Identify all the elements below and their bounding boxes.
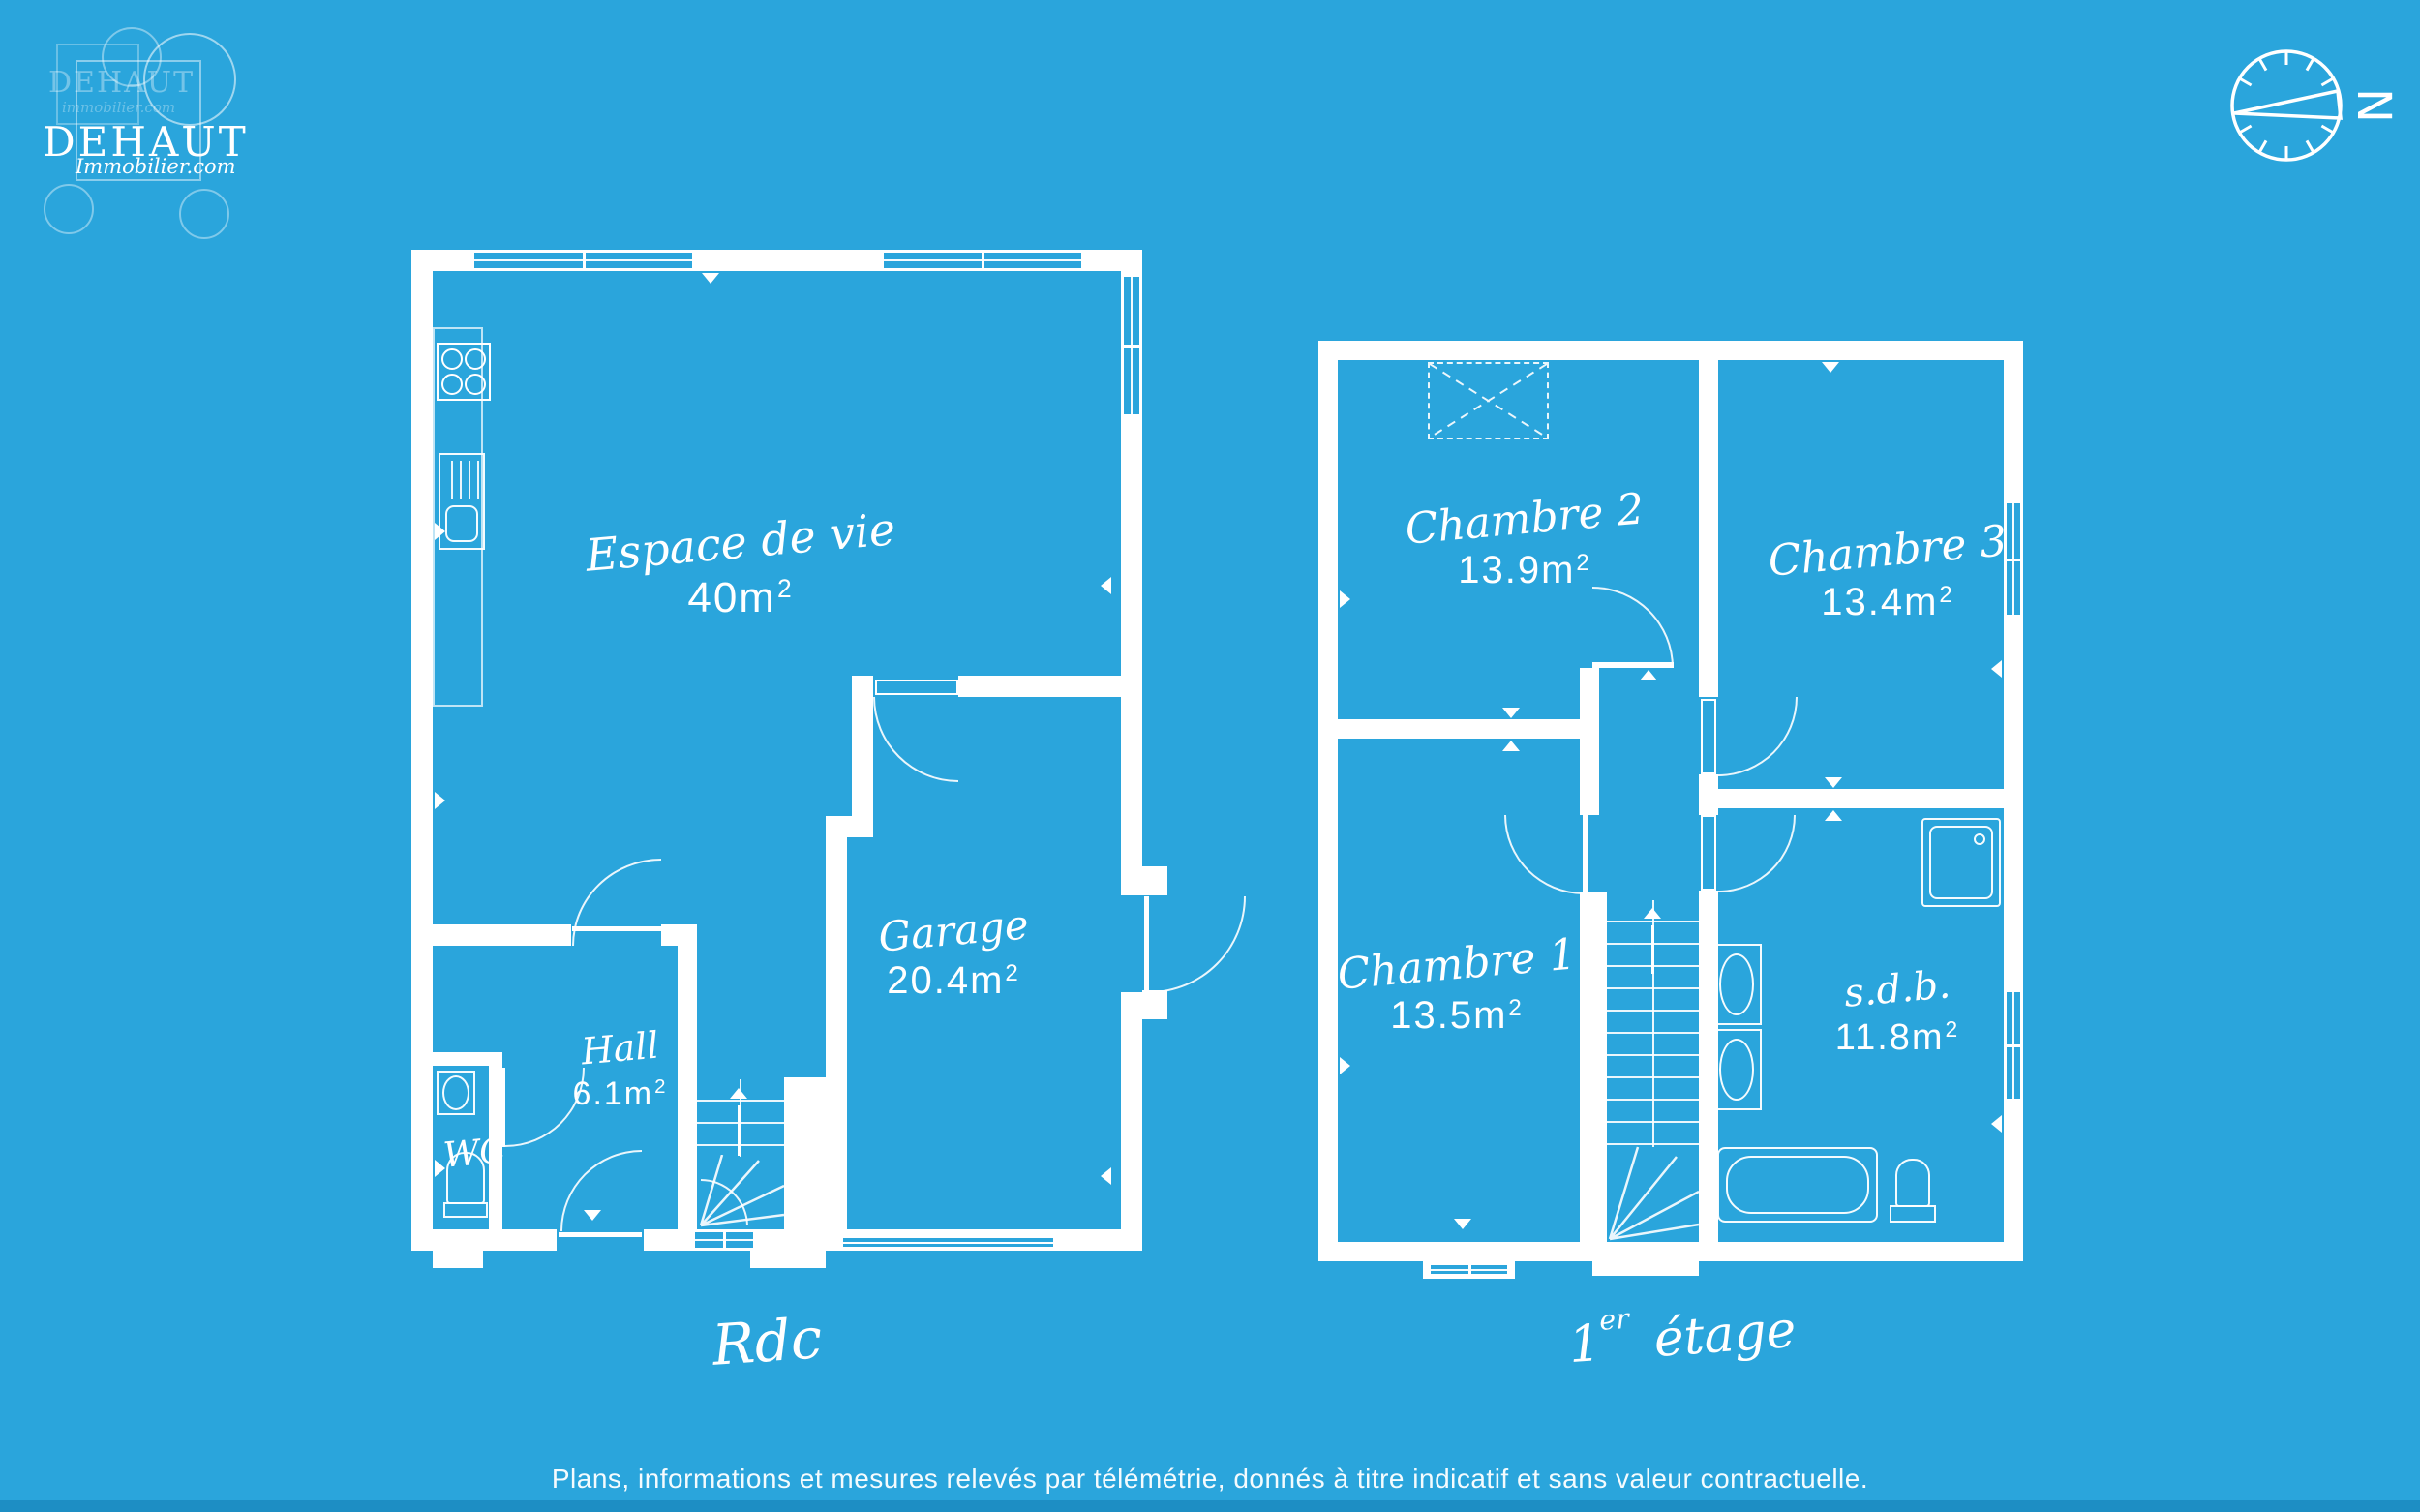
wall xyxy=(1699,360,1718,668)
wall-marker xyxy=(435,523,445,540)
floor-label-etage: 1er étage xyxy=(1555,1300,1810,1376)
wall-marker xyxy=(1454,1219,1471,1229)
wall xyxy=(1142,866,1167,895)
wall-marker xyxy=(1640,670,1657,680)
wall xyxy=(433,1052,502,1066)
room-label-sdb: s.d.b. 11.8m2 xyxy=(1791,968,2004,1058)
washbasin-icon xyxy=(1711,944,1762,1025)
logo-subtext-faint: immobilier.com xyxy=(62,99,175,116)
door-leaf xyxy=(875,680,958,695)
door-arc xyxy=(1592,587,1674,668)
logo-circle-bottom-left xyxy=(44,184,94,234)
washbasin-bowl xyxy=(442,1075,469,1110)
wall xyxy=(1318,341,1338,1261)
wall-marker xyxy=(1825,810,1842,821)
wall xyxy=(852,676,873,837)
room-label-hall: Hall 6.1m2 xyxy=(530,1028,710,1112)
logo-circle-bottom-right xyxy=(179,189,229,239)
wall-marker xyxy=(1340,590,1350,608)
stairs-winder-icon xyxy=(697,1155,784,1229)
wall xyxy=(1318,341,2023,360)
wall-marker xyxy=(1101,577,1111,594)
washbasin-bowl xyxy=(1719,953,1754,1015)
stove-icon xyxy=(437,343,491,401)
compass-north-label: N xyxy=(2346,88,2401,123)
window xyxy=(1431,1263,1507,1276)
toilet-icon xyxy=(1895,1159,1930,1207)
garage-gate xyxy=(832,1236,1063,1249)
washbasin-bowl xyxy=(1719,1039,1754,1101)
garage-gate-cap xyxy=(1053,1238,1062,1247)
velux-skylight xyxy=(1428,362,1549,439)
door-leaf xyxy=(1701,699,1716,774)
door-arc xyxy=(572,859,661,946)
window xyxy=(2004,992,2023,1099)
stairs-arrow xyxy=(738,1105,741,1156)
door-arc xyxy=(1504,815,1584,894)
wall xyxy=(784,1077,826,1229)
wall xyxy=(661,924,697,946)
stairs-arrow-head xyxy=(1644,908,1661,919)
room-label-chambre-2: Chambre 2 13.9m2 xyxy=(1384,496,1665,592)
compass-ring xyxy=(2232,51,2341,160)
room-label-chambre-3: Chambre 3 13.4m2 xyxy=(1742,528,2033,624)
wall xyxy=(411,250,433,1251)
door-leaf xyxy=(572,926,661,931)
wall xyxy=(1338,719,1580,739)
porch xyxy=(750,1251,826,1268)
door-leaf xyxy=(1701,815,1716,891)
wall xyxy=(1142,990,1167,1019)
window xyxy=(1121,277,1142,414)
sink-icon xyxy=(439,453,485,550)
room-label-garage: Garage 20.4m2 xyxy=(828,908,1079,1003)
dehaut-logo: DEHAUT immobilier.com DEHAUT Immobilier.… xyxy=(29,10,281,252)
wall xyxy=(1318,1242,2023,1261)
wall-marker xyxy=(702,273,719,284)
wall-marker xyxy=(435,792,445,809)
door-arc xyxy=(560,1150,642,1231)
room-label-espace-de-vie: Espace de vie 40m2 xyxy=(571,518,910,621)
wall xyxy=(1580,668,1599,815)
door-arc xyxy=(1718,815,1796,892)
window xyxy=(884,250,1081,271)
floor-plan-rdc xyxy=(411,250,1142,1276)
door-leaf xyxy=(559,1232,642,1237)
washbasin-icon xyxy=(437,1071,475,1115)
floor-label-rdc: Rdc xyxy=(676,1303,859,1381)
wall-marker xyxy=(1502,741,1520,751)
wall-marker xyxy=(1991,660,2002,678)
velux-cross xyxy=(1430,364,1547,438)
wall-marker xyxy=(1825,777,1842,788)
room-label-chambre-1: Chambre 1 13.5m2 xyxy=(1321,941,1592,1038)
logo-text-faint: DEHAUT xyxy=(48,66,195,100)
door-arc xyxy=(1149,896,1246,993)
stairs-arrow xyxy=(1651,925,1654,974)
toilet-tank xyxy=(443,1202,488,1218)
door-leaf xyxy=(1592,662,1674,668)
bathtub-inner xyxy=(1726,1156,1869,1214)
floor-plan-etage xyxy=(1318,341,2023,1285)
door-arc xyxy=(1718,697,1798,776)
window xyxy=(695,1229,753,1251)
wall xyxy=(1718,789,2004,808)
wall-marker xyxy=(1502,708,1520,718)
compass-needle xyxy=(2234,91,2341,118)
wall-marker xyxy=(1822,362,1839,373)
wall-marker xyxy=(1101,1167,1111,1185)
floor-plan-page: DEHAUT immobilier.com DEHAUT Immobilier.… xyxy=(0,0,2420,1512)
garage-gate-cap xyxy=(834,1238,843,1247)
wall xyxy=(826,816,847,1229)
wall-marker xyxy=(1340,1057,1350,1074)
compass-icon: N xyxy=(2226,44,2410,179)
wall-marker xyxy=(584,1210,601,1221)
logo-subtext: Immobilier.com xyxy=(76,155,236,178)
shower-icon xyxy=(1921,818,2001,907)
porch xyxy=(433,1251,483,1268)
sink-drainer xyxy=(444,461,479,499)
shower-drain xyxy=(1974,833,1985,845)
window xyxy=(474,250,692,271)
stairs-arrow-head xyxy=(730,1088,747,1099)
door-opening xyxy=(1121,895,1142,992)
wall xyxy=(433,924,571,946)
wall xyxy=(1699,774,1718,815)
wall-marker xyxy=(1991,1115,2002,1133)
porch xyxy=(1592,1261,1699,1276)
compass-ticks xyxy=(2240,52,2332,159)
wall-marker xyxy=(797,1167,807,1185)
wall xyxy=(958,676,1121,697)
wall xyxy=(1699,668,1718,697)
toilet-tank xyxy=(1890,1205,1936,1223)
disclaimer-text: Plans, informations et mesures relevés p… xyxy=(0,1464,2420,1495)
footer-bar xyxy=(0,1500,2420,1512)
room-label-wc: WC xyxy=(434,1134,516,1173)
wall xyxy=(2004,341,2023,1261)
stairs-winder-icon xyxy=(1607,1145,1699,1242)
door-arc xyxy=(873,697,958,782)
sink-basin xyxy=(445,505,478,542)
bathtub-icon xyxy=(1717,1147,1878,1223)
washbasin-icon xyxy=(1711,1029,1762,1110)
